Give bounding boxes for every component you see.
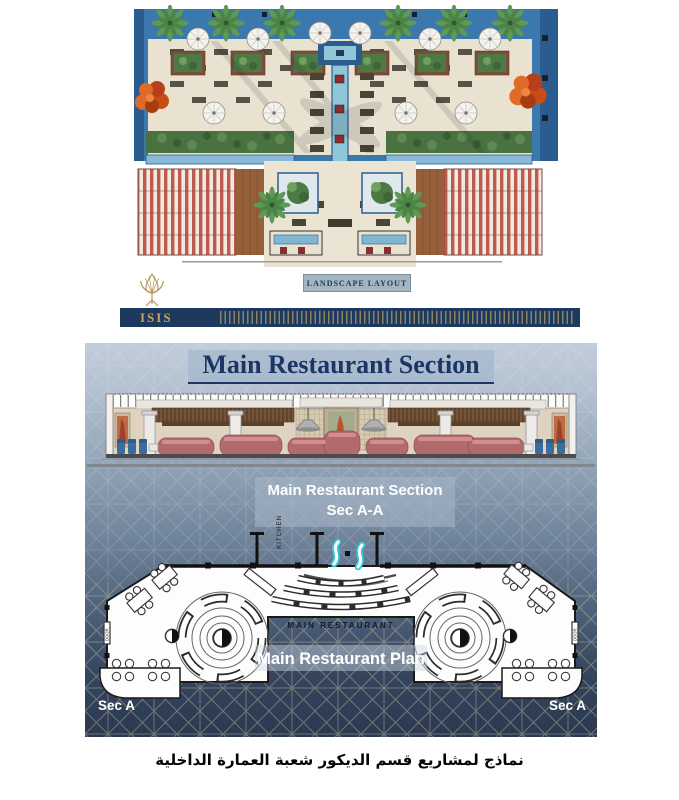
- plan-label: Main Restaurant Plan: [257, 650, 425, 668]
- hieroglyph-texture: [220, 311, 575, 324]
- isis-banner: ISIS: [120, 308, 580, 327]
- restaurant-section-drawing: [102, 392, 580, 470]
- section-floor: [106, 454, 576, 458]
- counter-left: [270, 231, 322, 255]
- door-label-right: DOOR: [573, 628, 578, 641]
- landscape-layout-label-text: LANDSCAPE LAYOUT: [307, 279, 407, 288]
- door-label-left: DOOR: [105, 628, 110, 641]
- water-feature: [334, 542, 362, 567]
- kitchen-walls: [250, 533, 384, 566]
- board-title-text: Main Restaurant Section: [188, 350, 493, 384]
- column-symbol: [165, 629, 178, 642]
- section-label-line1: Main Restaurant Section: [259, 481, 451, 501]
- sec-a-label-left: Sec A: [98, 698, 135, 713]
- landscape-board: LANDSCAPE LAYOUT ISIS: [120, 5, 580, 330]
- lotus-icon: [136, 271, 168, 309]
- restaurant-plan-drawing: KITCHEN: [88, 505, 594, 717]
- page-caption: نماذج لمشاريع قسم الديكور شعبة العمارة ا…: [0, 751, 679, 769]
- restaurant-board: Main Restaurant Section: [85, 343, 597, 737]
- kitchen-label: KITCHEN: [276, 515, 283, 549]
- sec-a-label-right: Sec A: [549, 698, 586, 713]
- pergola-left: [138, 169, 236, 255]
- landscape-plan-drawing: [122, 5, 560, 271]
- plan-small-label: MAIN RESTAURANT: [287, 621, 394, 630]
- counter-right: [358, 231, 410, 255]
- column-symbol: [503, 629, 516, 642]
- pergola-right: [444, 169, 542, 255]
- isis-logo-text: ISIS: [140, 310, 173, 326]
- board-title: Main Restaurant Section: [85, 350, 597, 384]
- landscape-layout-label: LANDSCAPE LAYOUT: [303, 274, 411, 292]
